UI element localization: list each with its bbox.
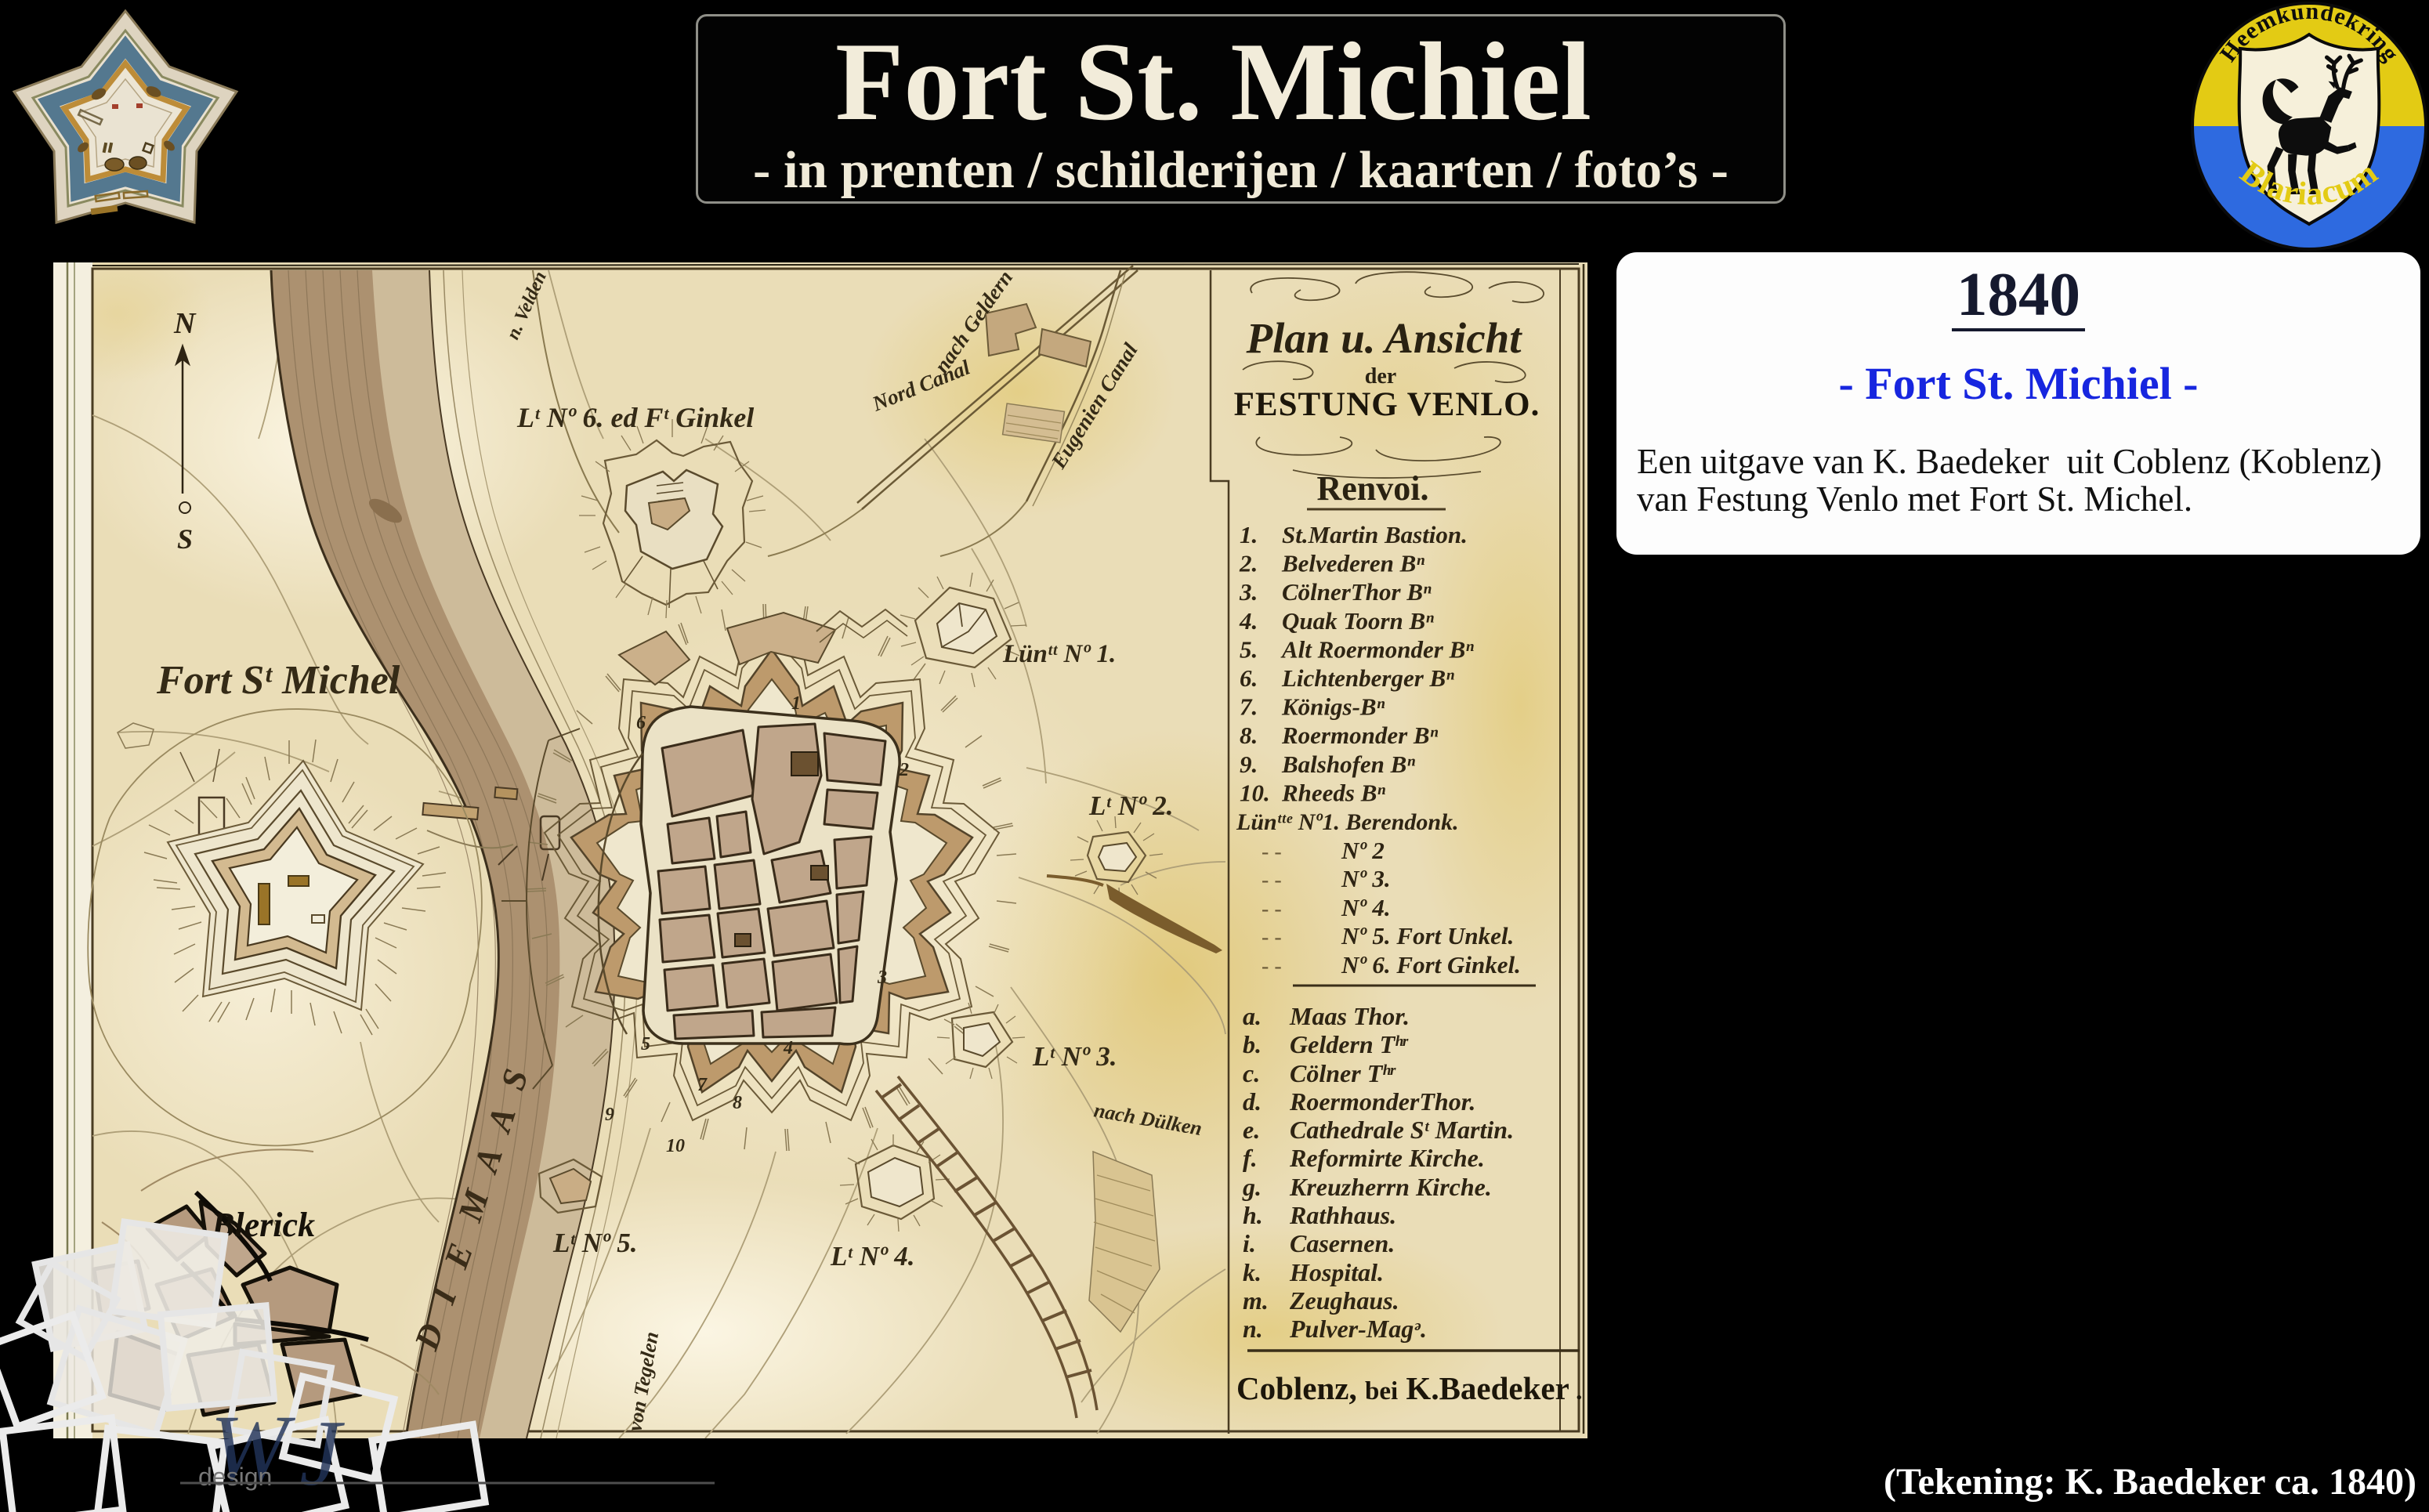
- svg-text:4: 4: [783, 1038, 793, 1058]
- svg-text:g.: g.: [1242, 1173, 1262, 1201]
- svg-text:Hospital.: Hospital.: [1289, 1258, 1384, 1286]
- svg-text:- -: - -: [1262, 925, 1282, 950]
- svg-text:9: 9: [605, 1105, 614, 1125]
- svg-text:Königs-Bⁿ: Königs-Bⁿ: [1281, 693, 1385, 721]
- svg-text:4.: 4.: [1239, 607, 1258, 635]
- svg-text:5: 5: [641, 1034, 650, 1054]
- svg-text:Geldern Tʰʳ: Geldern Tʰʳ: [1290, 1030, 1409, 1058]
- svg-text:6.: 6.: [1240, 664, 1258, 692]
- svg-text:St.Martin Bastion.: St.Martin Bastion.: [1282, 521, 1468, 548]
- svg-text:b.: b.: [1243, 1030, 1262, 1058]
- svg-text:7: 7: [697, 1075, 708, 1095]
- svg-text:der: der: [1365, 364, 1396, 389]
- svg-text:Rathhaus.: Rathhaus.: [1289, 1201, 1396, 1229]
- svg-text:Nº 6. Fort Ginkel.: Nº 6. Fort Ginkel.: [1341, 951, 1521, 978]
- svg-text:5.: 5.: [1240, 635, 1258, 663]
- svg-text:Lünᵗᵗ Nº 1.: Lünᵗᵗ Nº 1.: [1002, 640, 1116, 668]
- svg-text:Lichtenberger Bⁿ: Lichtenberger Bⁿ: [1281, 664, 1454, 692]
- svg-text:Roermonder Bⁿ: Roermonder Bⁿ: [1281, 722, 1439, 749]
- svg-text:f.: f.: [1243, 1144, 1258, 1172]
- svg-text:e.: e.: [1243, 1116, 1260, 1144]
- svg-text:Quak Toorn Bⁿ: Quak Toorn Bⁿ: [1282, 607, 1434, 635]
- svg-text:J: J: [299, 1401, 345, 1505]
- svg-text:Lᵗ Nº 4.: Lᵗ Nº 4.: [830, 1241, 914, 1271]
- svg-text:Maas Thor.: Maas Thor.: [1289, 1002, 1410, 1030]
- svg-text:Cathedrale Sᵗ Martin.: Cathedrale Sᵗ Martin.: [1290, 1116, 1514, 1144]
- svg-text:Nº 4.: Nº 4.: [1341, 894, 1391, 921]
- svg-text:Lᵗ Nº 2.: Lᵗ Nº 2.: [1088, 790, 1173, 821]
- svg-text:Rheeds Bⁿ: Rheeds Bⁿ: [1281, 779, 1385, 806]
- svg-text:8.: 8.: [1240, 722, 1258, 749]
- svg-text:Reformirte Kirche.: Reformirte Kirche.: [1289, 1144, 1485, 1172]
- svg-text:Lᵗ Nº 6. ed Fᵗ Ginkel: Lᵗ Nº 6. ed Fᵗ Ginkel: [516, 402, 754, 433]
- svg-text:- -: - -: [1262, 868, 1282, 892]
- svg-text:3: 3: [877, 968, 887, 988]
- svg-text:Nº 3.: Nº 3.: [1341, 865, 1391, 892]
- svg-text:Coblenz, bei K.Baedeker .: Coblenz, bei K.Baedeker .: [1236, 1370, 1582, 1406]
- svg-text:Casernen.: Casernen.: [1290, 1229, 1395, 1257]
- svg-text:Balshofen Bⁿ: Balshofen Bⁿ: [1281, 751, 1415, 778]
- svg-text:S: S: [177, 523, 193, 555]
- svg-text:1: 1: [791, 693, 801, 714]
- svg-text:1.: 1.: [1240, 521, 1258, 548]
- svg-text:7.: 7.: [1240, 693, 1258, 721]
- svg-text:Nº 5. Fort Unkel.: Nº 5. Fort Unkel.: [1341, 922, 1514, 950]
- svg-text:Renvoi.: Renvoi.: [1317, 469, 1429, 508]
- svg-text:- -: - -: [1262, 897, 1282, 921]
- svg-text:Alt Roermonder Bⁿ: Alt Roermonder Bⁿ: [1280, 635, 1474, 663]
- svg-text:a.: a.: [1243, 1002, 1262, 1030]
- svg-text:Kreuzherrn Kirche.: Kreuzherrn Kirche.: [1289, 1173, 1492, 1201]
- svg-text:n.: n.: [1243, 1315, 1263, 1343]
- svg-text:CölnerThor Bⁿ: CölnerThor Bⁿ: [1282, 578, 1432, 606]
- svg-text:c.: c.: [1243, 1059, 1260, 1087]
- svg-text:Cölner Tʰʳ: Cölner Tʰʳ: [1290, 1059, 1396, 1087]
- svg-text:d.: d.: [1243, 1087, 1262, 1116]
- svg-text:Fort Sᵗ Michel: Fort Sᵗ Michel: [156, 658, 400, 703]
- svg-text:N: N: [173, 307, 197, 340]
- svg-text:Belvederen Bⁿ: Belvederen Bⁿ: [1281, 550, 1424, 577]
- svg-text:9.: 9.: [1240, 751, 1258, 778]
- svg-text:3.: 3.: [1239, 578, 1258, 606]
- svg-text:10.: 10.: [1240, 779, 1270, 806]
- svg-text:m.: m.: [1243, 1286, 1269, 1315]
- svg-text:6: 6: [636, 713, 646, 733]
- svg-text:h.: h.: [1243, 1201, 1263, 1229]
- svg-text:Plan u. Ansicht: Plan u. Ansicht: [1245, 314, 1522, 362]
- svg-text:Pulver-Magᵊ.: Pulver-Magᵊ.: [1289, 1315, 1427, 1343]
- svg-text:- -: - -: [1262, 840, 1282, 864]
- svg-text:k.: k.: [1243, 1258, 1262, 1286]
- svg-text:8: 8: [733, 1093, 742, 1113]
- svg-text:Zeughaus.: Zeughaus.: [1289, 1286, 1399, 1315]
- svg-text:2.: 2.: [1239, 550, 1258, 577]
- svg-text:design: design: [198, 1463, 272, 1491]
- svg-text:RoermonderThor.: RoermonderThor.: [1289, 1087, 1475, 1116]
- svg-text:Nº 2: Nº 2: [1341, 837, 1385, 864]
- svg-text:2: 2: [899, 760, 909, 780]
- svg-text:Lünᵗᵗᵉ Nº1. Berendonk.: Lünᵗᵗᵉ Nº1. Berendonk.: [1236, 809, 1459, 835]
- svg-text:- -: - -: [1262, 954, 1282, 978]
- svg-text:Lᵗ Nº 3.: Lᵗ Nº 3.: [1032, 1041, 1117, 1072]
- svg-text:FESTUNG VENLO.: FESTUNG VENLO.: [1234, 386, 1540, 423]
- svg-text:i.: i.: [1243, 1229, 1256, 1257]
